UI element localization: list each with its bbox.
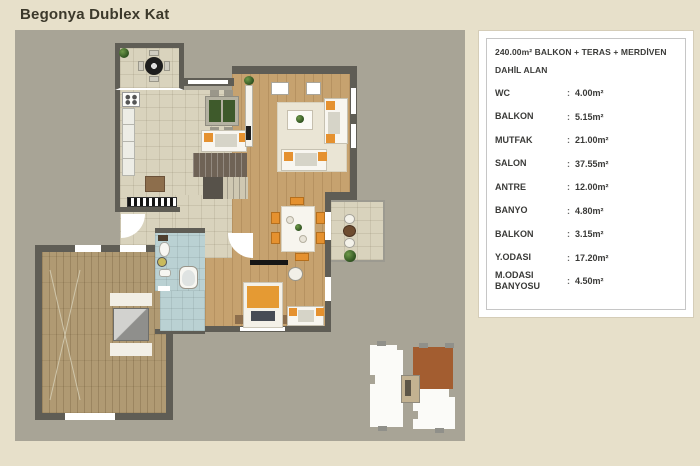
balcony-chair-e (164, 61, 170, 71)
bed-blanket (247, 286, 279, 308)
toilet (159, 242, 170, 257)
legend-rows: WC:4.00m² BALKON:5.15m² MUTFAK:21.00m² S… (495, 82, 677, 294)
terrace-stair-lines (45, 265, 85, 405)
wall-salon-bottom-right (325, 192, 357, 200)
salon-loveseat-cushion (295, 153, 317, 166)
legend-row-value: 5.15m² (575, 112, 604, 122)
legend-row-label: ANTRE (495, 182, 567, 193)
room-wc-floor (160, 291, 205, 331)
wall-kitchen-left (115, 90, 120, 212)
legend-title: 240.00m² BALKON + TERAS + MERDİVEN DAHİL… (495, 44, 677, 80)
legend-row: BANYO:4.80m² (495, 199, 677, 223)
antre-chair-n (290, 197, 304, 205)
balcony-round-table (145, 57, 163, 75)
antre-chair-e1 (316, 212, 325, 224)
washing-machine (157, 257, 167, 267)
antre-table-plate-2 (299, 235, 307, 243)
sink (159, 269, 171, 277)
keyplan-notch-3 (413, 411, 418, 419)
keyplan-core-stair (405, 380, 411, 396)
dining-chair-1 (210, 90, 219, 96)
stove (122, 92, 140, 107)
dining-chair-2 (224, 90, 233, 96)
tv (246, 126, 251, 140)
light-shaft-top (110, 293, 152, 306)
page: Begonya Dublex Kat (0, 0, 700, 466)
legend-row-value: 12.00m² (575, 182, 609, 192)
legend-row-separator: : (567, 206, 570, 216)
balcony-right-door (325, 212, 331, 240)
area-legend-inner: 240.00m² BALKON + TERAS + MERDİVEN DAHİL… (486, 38, 686, 310)
keyplan-tab-5 (435, 428, 444, 433)
legend-row-value: 4.50m² (575, 276, 604, 286)
legend-row-label: BANYO (495, 205, 567, 216)
legend-row-separator: : (567, 159, 570, 169)
terrace-bottom-window (65, 413, 115, 420)
room-balcony-right-floor (331, 200, 385, 262)
kitchen-cabinet (145, 176, 165, 192)
keyplan-notch-1 (370, 375, 375, 384)
legend-row: MUTFAK:21.00m² (495, 129, 677, 153)
legend-row-separator: : (567, 135, 570, 145)
window-salon-top-2 (306, 82, 321, 95)
legend-row-label: Y.ODASI (495, 252, 567, 263)
balcony-right-table (343, 225, 356, 237)
window-north-dining (188, 80, 228, 84)
terrace-top-window (75, 245, 101, 252)
stairs-landing (203, 177, 223, 199)
legend-row: BALKON:5.15m² (495, 105, 677, 129)
stairs-upper-flight (193, 153, 247, 177)
legend-row-label: BALKON (495, 111, 567, 122)
antre-chair-e2 (316, 232, 325, 244)
legend-row-separator: : (567, 253, 570, 263)
dining-table-runner-2 (223, 100, 235, 122)
bedroom-sofa-pillow-1 (289, 308, 297, 316)
keyplan-tab-1 (377, 341, 386, 346)
antre-table-centerpiece (295, 224, 302, 231)
bed-bench (251, 311, 275, 321)
legend-row-separator: : (567, 112, 570, 122)
keyplan-tab-3 (445, 343, 454, 348)
legend-row: SALON:37.55m² (495, 152, 677, 176)
keyplan-notch-2 (397, 345, 404, 350)
sofa-family-cushion (215, 134, 237, 147)
keyplan-notch-4 (449, 389, 455, 397)
balcony-right-chair-1 (344, 214, 355, 224)
salon-loveseat-pillow-2 (318, 152, 327, 161)
legend-row-label: WC (495, 88, 567, 99)
legend-row-label: M.ODASI BANYOSU (495, 270, 567, 293)
legend-row-label: SALON (495, 158, 567, 169)
legend-row: ANTRE:12.00m² (495, 176, 677, 200)
potted-plant-balcony (119, 48, 129, 58)
wc-door-gap (158, 286, 170, 291)
skylight-glass (113, 308, 149, 341)
window-salon-right-1 (351, 88, 356, 114)
antre-chair-w2 (271, 232, 280, 244)
bathroom-shelf (158, 235, 168, 241)
balcony-chair-w (138, 61, 144, 71)
salon-sofa-east-cushion (328, 112, 340, 134)
legend-row-separator: : (567, 276, 570, 286)
bedroom-sofa-cushion (298, 310, 314, 322)
sofa-family-pillow-1 (204, 133, 213, 142)
dining-table-runner-1 (209, 100, 221, 122)
hall-console (250, 260, 288, 265)
legend-row-value: 3.15m² (575, 229, 604, 239)
antre-chair-w1 (271, 212, 280, 224)
salon-loveseat-pillow-1 (284, 152, 293, 161)
hall-armchair (288, 267, 303, 281)
legend-row: M.ODASI BANYOSU:4.50m² (495, 270, 677, 294)
keyplan-tab-4 (378, 426, 387, 431)
nightstand-left (235, 315, 243, 324)
legend-row-separator: : (567, 229, 570, 239)
legend-row-label: BALKON (495, 229, 567, 240)
terrace-top-window-2 (120, 245, 146, 252)
bedroom-sofa-pillow-2 (316, 308, 324, 316)
legend-row-label: MUTFAK (495, 135, 567, 146)
potted-plant-salon (244, 76, 254, 85)
legend-row-separator: : (567, 182, 570, 192)
keyplan-tab-2 (419, 343, 428, 348)
window-bedroom-right (325, 277, 331, 301)
antre-chair-s (295, 253, 309, 261)
legend-row-value: 4.00m² (575, 88, 604, 98)
balcony-right-plant (344, 250, 356, 262)
wall-salon-top (232, 66, 357, 74)
salon-sofa-east-pillow-2 (326, 134, 335, 143)
antre-table-plate-1 (286, 216, 294, 224)
coffee-table-plant (296, 115, 304, 123)
floor-plan (15, 30, 465, 441)
legend-row-value: 37.55m² (575, 159, 609, 169)
wall-kitchen-south (120, 207, 180, 212)
light-shaft-bottom (110, 343, 152, 356)
legend-row: BALKON:3.15m² (495, 223, 677, 247)
legend-row-value: 17.20m² (575, 253, 609, 263)
balcony-right-chair-2 (344, 238, 355, 248)
legend-row: Y.ODASI:17.20m² (495, 246, 677, 270)
balcony-chair-n (149, 50, 159, 56)
legend-row-value: 4.80m² (575, 206, 604, 216)
area-legend-panel: 240.00m² BALKON + TERAS + MERDİVEN DAHİL… (478, 30, 694, 318)
keyplan-building-left (370, 345, 403, 427)
balcony-chair-s (149, 76, 159, 82)
radiator (127, 197, 177, 207)
legend-row-value: 21.00m² (575, 135, 609, 145)
salon-sofa-east-pillow-1 (326, 101, 335, 110)
legend-row-separator: : (567, 88, 570, 98)
kitchen-counter (122, 108, 135, 176)
page-title: Begonya Dublex Kat (20, 6, 169, 23)
legend-row: WC:4.00m² (495, 82, 677, 106)
window-salon-top-1 (271, 82, 289, 95)
bathtub-basin (182, 270, 195, 286)
window-salon-right-2 (351, 124, 356, 148)
